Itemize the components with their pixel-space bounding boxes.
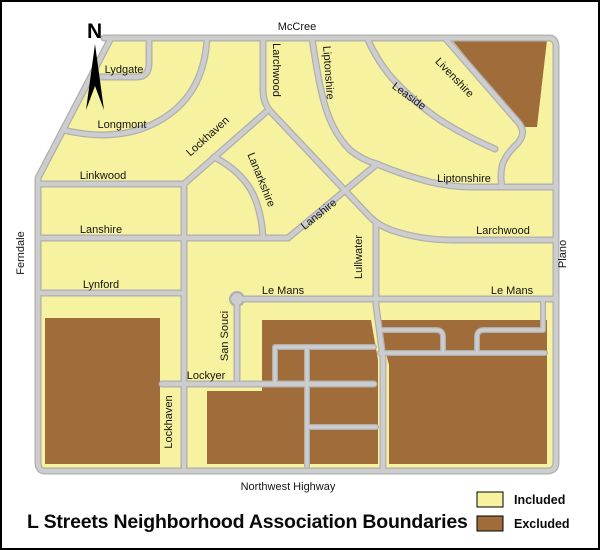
- street-label-lanshire-w: Lanshire: [80, 224, 122, 236]
- street-label-mccree: McCree: [278, 21, 317, 33]
- street-label-liptonshire-e: Liptonshire: [437, 173, 491, 185]
- cul-de-sac-icon: [231, 293, 242, 304]
- map-figure: N McCree Lydgate Longmont Linkwood Lansh…: [0, 0, 600, 550]
- street-label-northwest-highway: Northwest Highway: [241, 481, 336, 493]
- excluded-region-east: [381, 320, 547, 464]
- legend-excluded-label: Excluded: [514, 517, 570, 531]
- street-label-san-souci: San Souci: [219, 311, 231, 361]
- street-label-lullwater: Lullwater: [353, 235, 365, 279]
- street-label-le-mans-w: Le Mans: [262, 285, 305, 297]
- legend-included-label: Included: [514, 493, 565, 507]
- street-label-lynford: Lynford: [83, 279, 119, 291]
- north-label: N: [87, 20, 102, 43]
- street-label-lockyer: Lockyer: [187, 370, 226, 382]
- street-label-lydgate: Lydgate: [105, 64, 144, 76]
- street-label-lockhaven-s: Lockhaven: [163, 395, 175, 448]
- map-title: L Streets Neighborhood Association Bound…: [27, 511, 468, 533]
- street-label-plano: Plano: [557, 240, 569, 268]
- street-label-longmont: Longmont: [98, 119, 147, 131]
- street-label-le-mans-e: Le Mans: [491, 285, 534, 297]
- street-label-larchwood-e: Larchwood: [476, 225, 530, 237]
- street-label-larchwood-n: Larchwood: [270, 43, 282, 97]
- legend-excluded-swatch: [477, 516, 503, 531]
- legend-included-swatch: [477, 492, 503, 507]
- street-label-linkwood: Linkwood: [80, 170, 126, 182]
- map-page: N McCree Lydgate Longmont Linkwood Lansh…: [0, 0, 600, 550]
- street-label-ferndale: Ferndale: [15, 231, 27, 274]
- excluded-region-west: [45, 318, 160, 464]
